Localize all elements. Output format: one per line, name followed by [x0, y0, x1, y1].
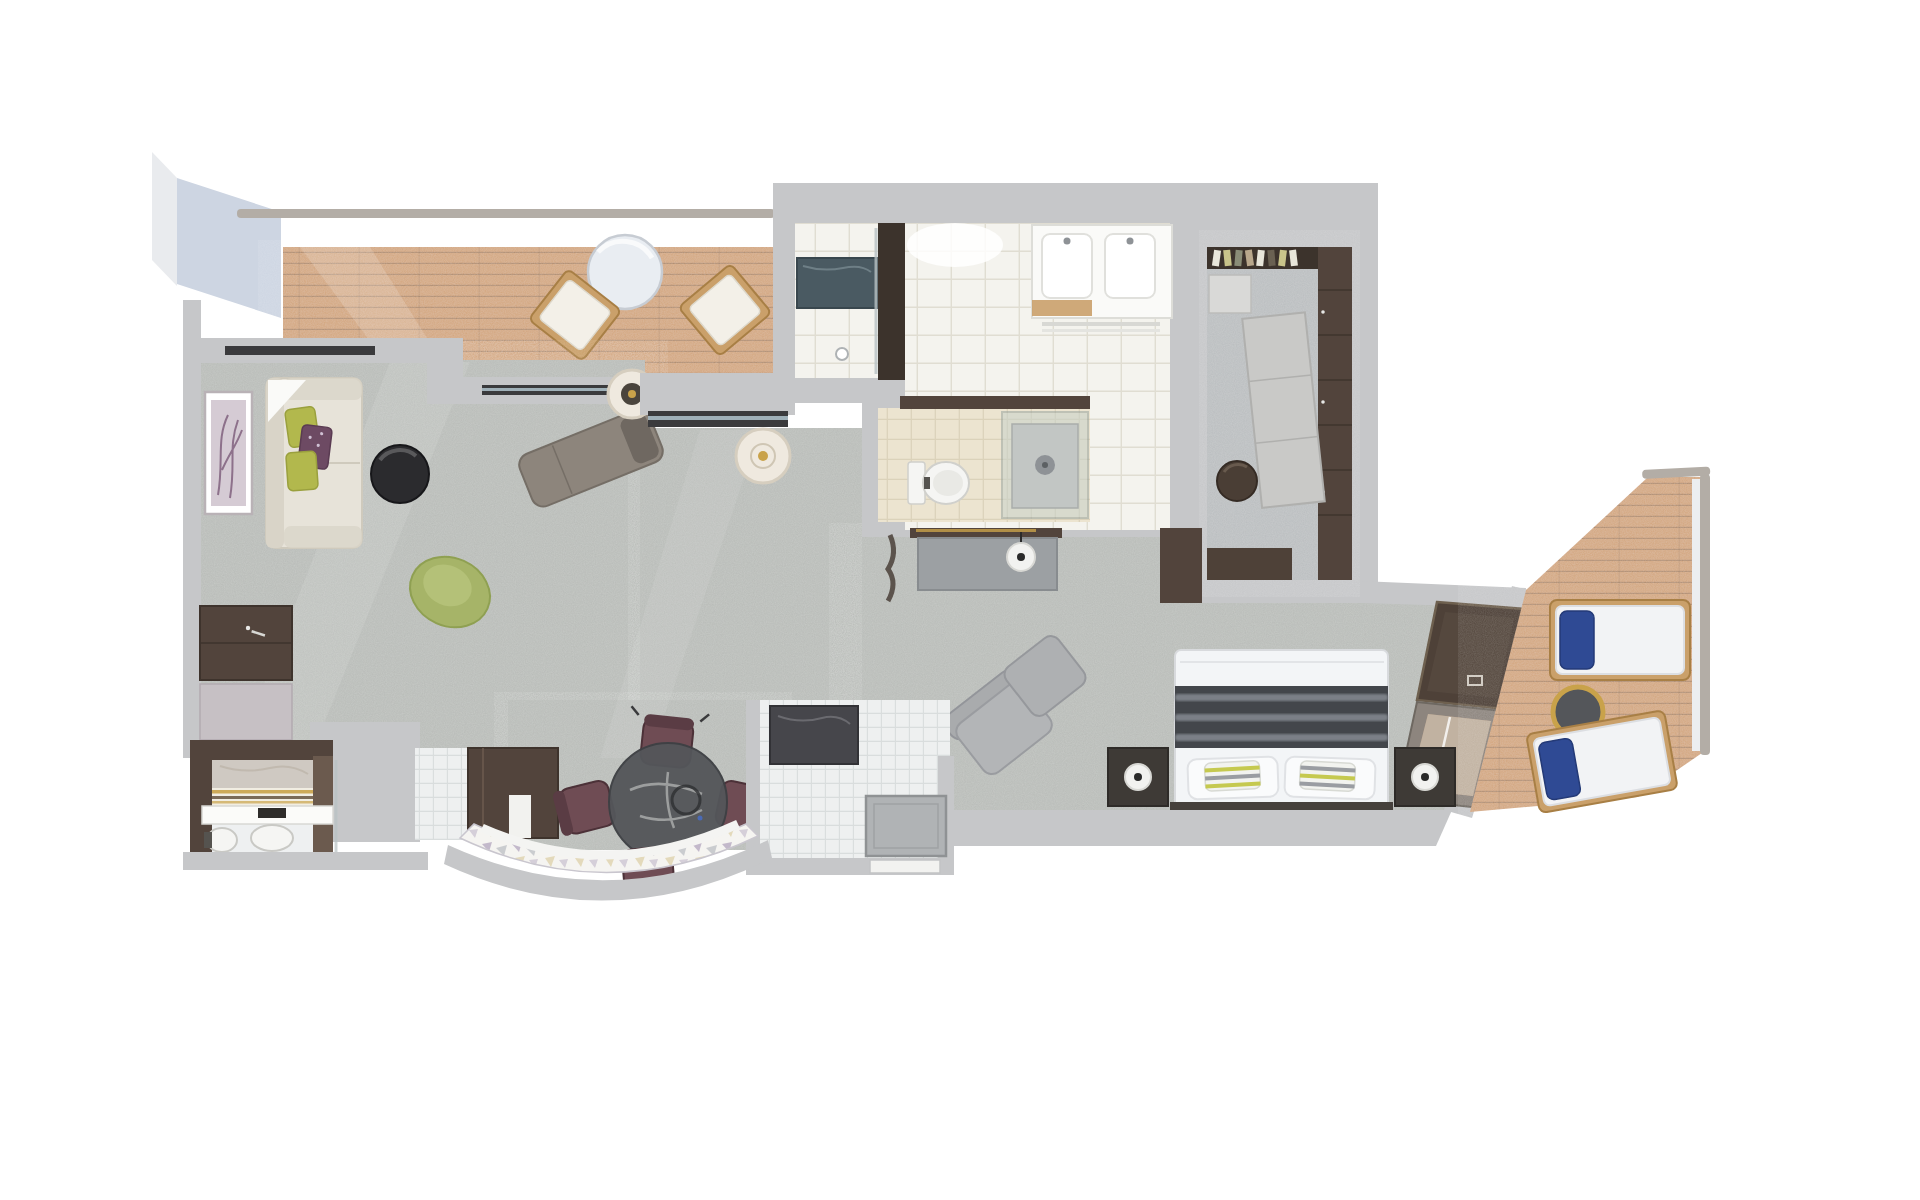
water-closet — [878, 396, 1090, 522]
foyer-floor-mat — [866, 796, 946, 856]
nightstand-left — [1108, 748, 1168, 806]
aft-railing — [1700, 474, 1710, 755]
hall-window-glass — [648, 416, 788, 420]
bath-divider-wall — [878, 223, 905, 380]
wc-shower — [1002, 412, 1088, 518]
gb-marble-panel — [212, 760, 313, 788]
forward-wall-panel — [177, 178, 281, 318]
mauve-cabinet — [200, 684, 292, 740]
writing-desk — [918, 538, 1057, 590]
exterior-corner-wall — [152, 152, 177, 286]
nightstand-right — [1395, 748, 1455, 806]
double-vanity — [1032, 225, 1172, 332]
shower-fixture — [836, 348, 848, 360]
floor-plan-rendering — [0, 0, 1920, 1200]
wc-north-wall — [900, 396, 1090, 409]
console-cabinet — [200, 606, 292, 680]
toilet — [908, 462, 969, 504]
coffee-table — [371, 445, 429, 503]
closet-low-cabinet — [1207, 548, 1292, 580]
sofa — [266, 378, 362, 548]
bath-light-glow — [907, 223, 1003, 267]
floor-plan-canvas — [0, 0, 1920, 1200]
gb-south-wall — [183, 852, 428, 870]
guest-bathroom — [183, 722, 428, 870]
hall-wall-band — [640, 373, 795, 415]
hall-round-table-candle — [736, 429, 790, 483]
wardrobe-column — [1318, 247, 1352, 580]
partition-wall — [468, 748, 558, 838]
sofa-pillow-green-2 — [286, 451, 319, 491]
closet-pouf — [1217, 461, 1257, 501]
foyer-console-counter — [770, 706, 858, 764]
gb-basin — [251, 825, 293, 851]
gb-towel-shelf — [212, 788, 313, 806]
sun-lounger-1 — [1550, 600, 1690, 680]
entry-door — [870, 860, 940, 873]
aft-railing-inner — [1692, 479, 1700, 751]
west-wall — [183, 300, 201, 758]
framed-artwork — [205, 392, 252, 514]
shower-bench-slate — [797, 258, 878, 308]
balcony-railing — [237, 209, 775, 218]
closet-shelf-box — [1209, 275, 1251, 313]
window-strip — [225, 346, 375, 355]
wall-jog — [427, 338, 463, 404]
towel-rail — [1042, 322, 1160, 326]
closet-entry-jamb — [1160, 528, 1202, 603]
king-bed — [1170, 650, 1393, 815]
